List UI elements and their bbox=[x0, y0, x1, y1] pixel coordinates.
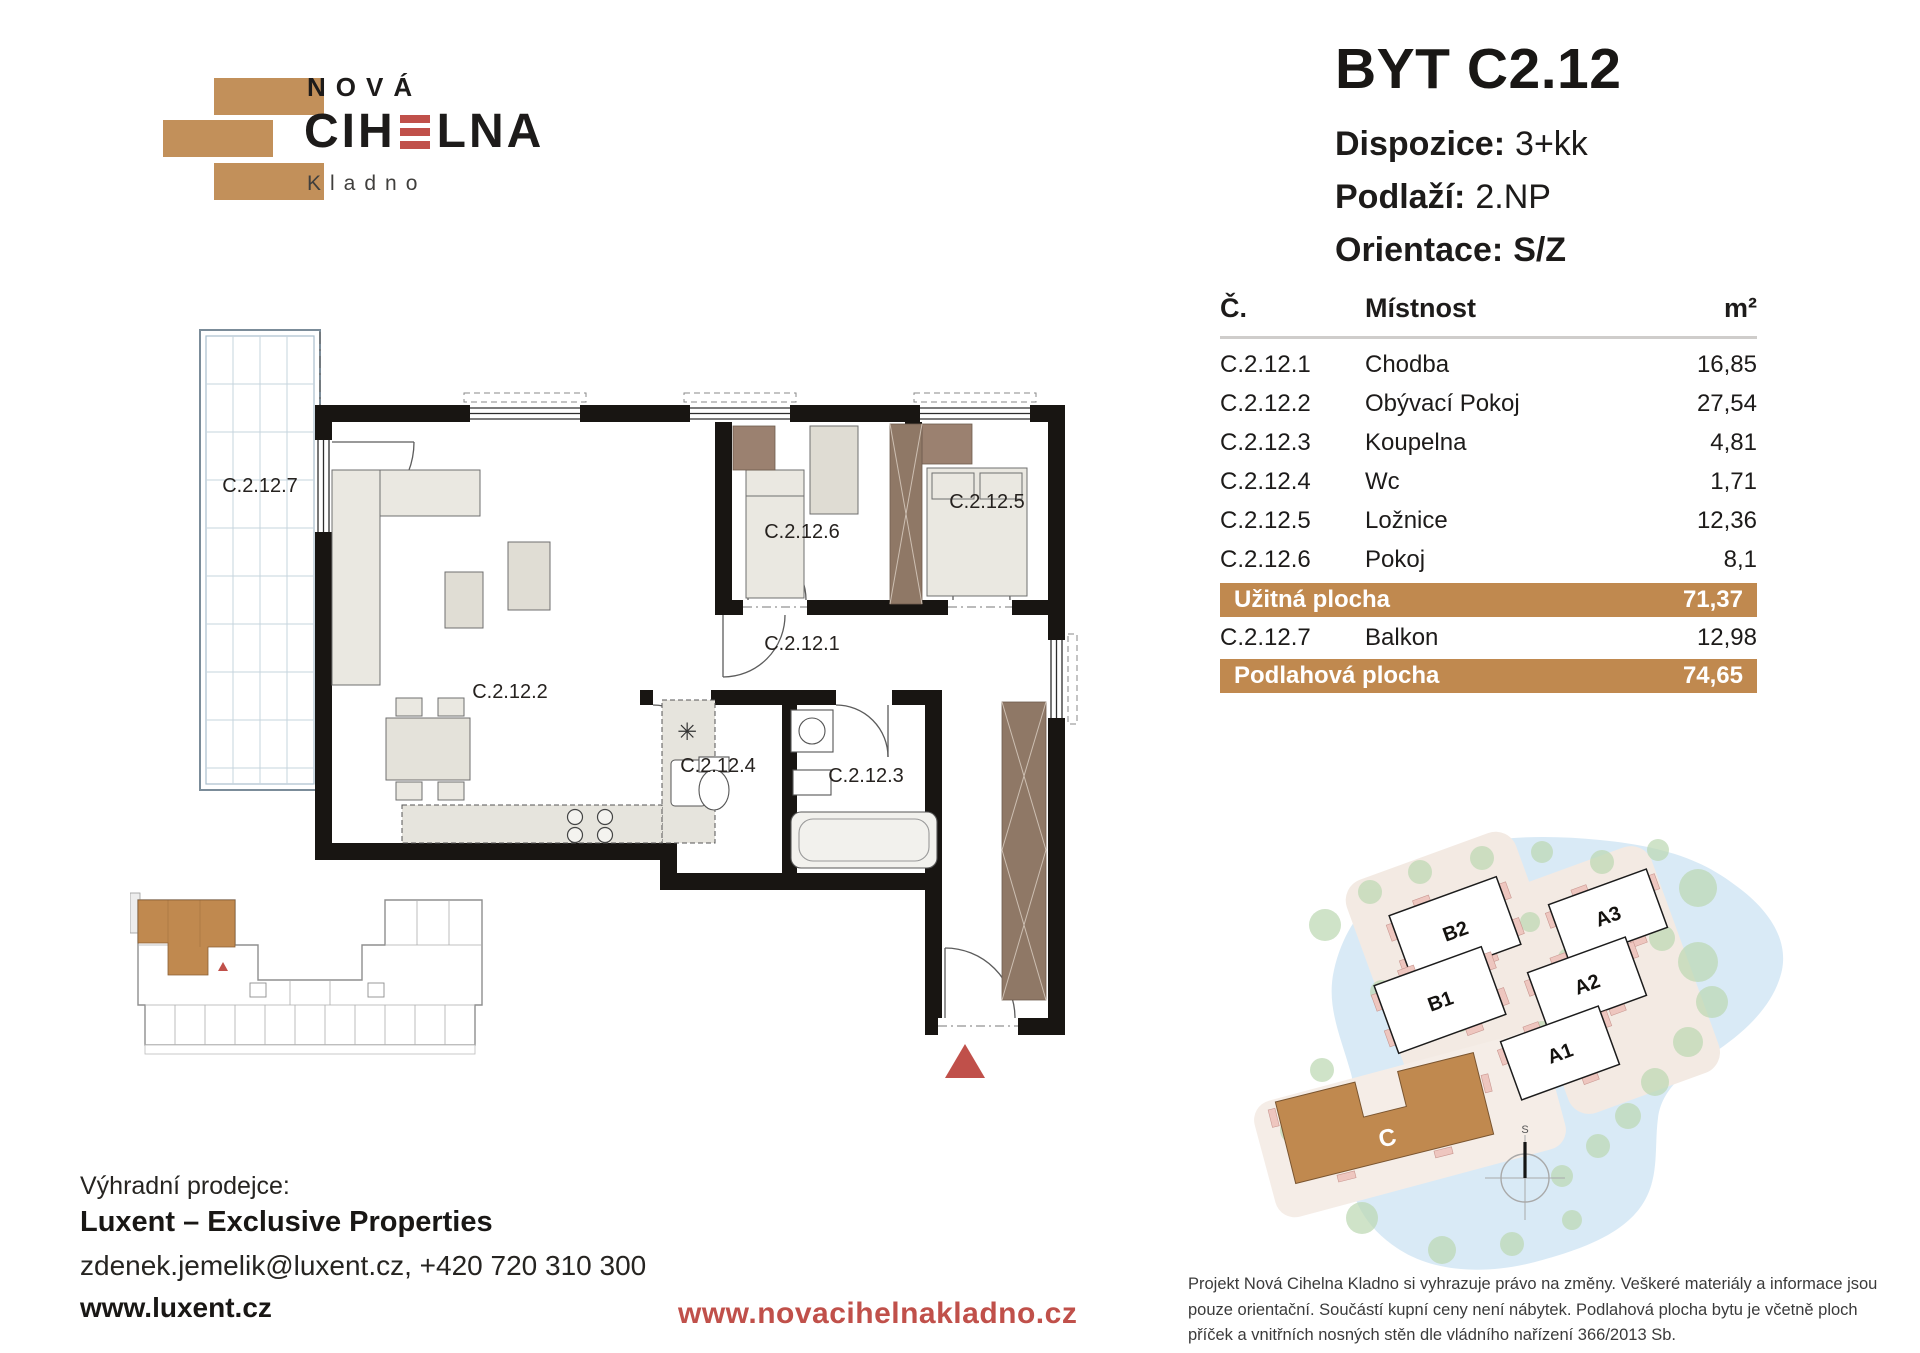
usable-area-band: Užitná plocha71,37 bbox=[1220, 583, 1757, 617]
disclaimer-text: Projekt Nová Cihelna Kladno si vyhrazuje… bbox=[1188, 1272, 1888, 1349]
table-row: C.2.12.4Wc1,71 bbox=[1220, 462, 1757, 501]
spec-orientace: Orientace:S/Z bbox=[1335, 224, 1588, 277]
floor-key-plan bbox=[130, 885, 490, 1060]
room-label-bedroom: C.2.12.5 bbox=[949, 491, 1025, 513]
logo-line-kladno: Kladno bbox=[307, 172, 426, 196]
floor-area-band: Podlahová plocha74,65 bbox=[1220, 659, 1757, 693]
spec-podlazi: Podlaží:2.NP bbox=[1335, 171, 1588, 224]
col-header-area: m² bbox=[1642, 293, 1757, 324]
room-table: Č. Místnost m² C.2.12.1Chodba16,85 C.2.1… bbox=[1220, 293, 1757, 697]
table-row: C.2.12.3Koupelna4,81 bbox=[1220, 423, 1757, 462]
seller-contact[interactable]: zdenek.jemelik@luxent.cz, +420 720 310 3… bbox=[80, 1250, 646, 1282]
project-website-link[interactable]: www.novacihelnakladno.cz bbox=[678, 1297, 1077, 1331]
table-header: Č. Místnost m² bbox=[1220, 293, 1757, 339]
page-title: BYT C2.12 bbox=[1335, 36, 1621, 102]
svg-text:✳: ✳ bbox=[677, 718, 697, 746]
seller-website-link[interactable]: www.luxent.cz bbox=[80, 1292, 272, 1324]
spec-list: Dispozice:3+kk Podlaží:2.NP Orientace:S/… bbox=[1335, 118, 1588, 277]
logo-line-cihelna: CIH LNA bbox=[304, 104, 544, 159]
room-label-bath: C.2.12.3 bbox=[828, 765, 904, 787]
room-label-hall: C.2.12.1 bbox=[764, 633, 840, 655]
room-label-room: C.2.12.6 bbox=[764, 521, 840, 543]
site-plan: B2 B1 A3 A2 bbox=[1230, 830, 1790, 1290]
spec-dispozice: Dispozice:3+kk bbox=[1335, 118, 1588, 171]
logo-cihelna-post: LNA bbox=[437, 104, 545, 159]
logo-e-bars-icon bbox=[400, 115, 430, 149]
brick-icon bbox=[163, 120, 273, 157]
room-label-balcony: C.2.12.7 bbox=[222, 475, 298, 497]
logo-cihelna-pre: CIH bbox=[304, 104, 396, 159]
table-row: C.2.12.6Pokoj8,1 bbox=[1220, 540, 1757, 579]
room-label-living: C.2.12.2 bbox=[472, 681, 548, 703]
entrance-arrow-icon bbox=[945, 1044, 985, 1078]
col-header-room: Místnost bbox=[1365, 293, 1642, 324]
svg-text:S: S bbox=[1521, 1124, 1528, 1136]
balcony-area bbox=[200, 330, 320, 790]
logo-line-nova: NOVÁ bbox=[307, 72, 422, 103]
seller-label: Výhradní prodejce: bbox=[80, 1172, 290, 1201]
table-row: C.2.12.1Chodba16,85 bbox=[1220, 345, 1757, 384]
seller-name: Luxent – Exclusive Properties bbox=[80, 1206, 493, 1239]
table-row: C.2.12.5Ložnice12,36 bbox=[1220, 501, 1757, 540]
logo-bricks-icon bbox=[163, 78, 324, 200]
col-header-number: Č. bbox=[1220, 293, 1365, 324]
table-row: C.2.12.2Obývací Pokoj27,54 bbox=[1220, 384, 1757, 423]
room-label-wc: C.2.12.4 bbox=[680, 755, 756, 777]
table-row-balcony: C.2.12.7Balkon12,98 bbox=[1220, 621, 1757, 655]
flat-datasheet: NOVÁ CIH LNA Kladno BYT C2.12 Dispozice:… bbox=[0, 0, 1920, 1353]
bathroom-fixtures bbox=[699, 710, 937, 868]
